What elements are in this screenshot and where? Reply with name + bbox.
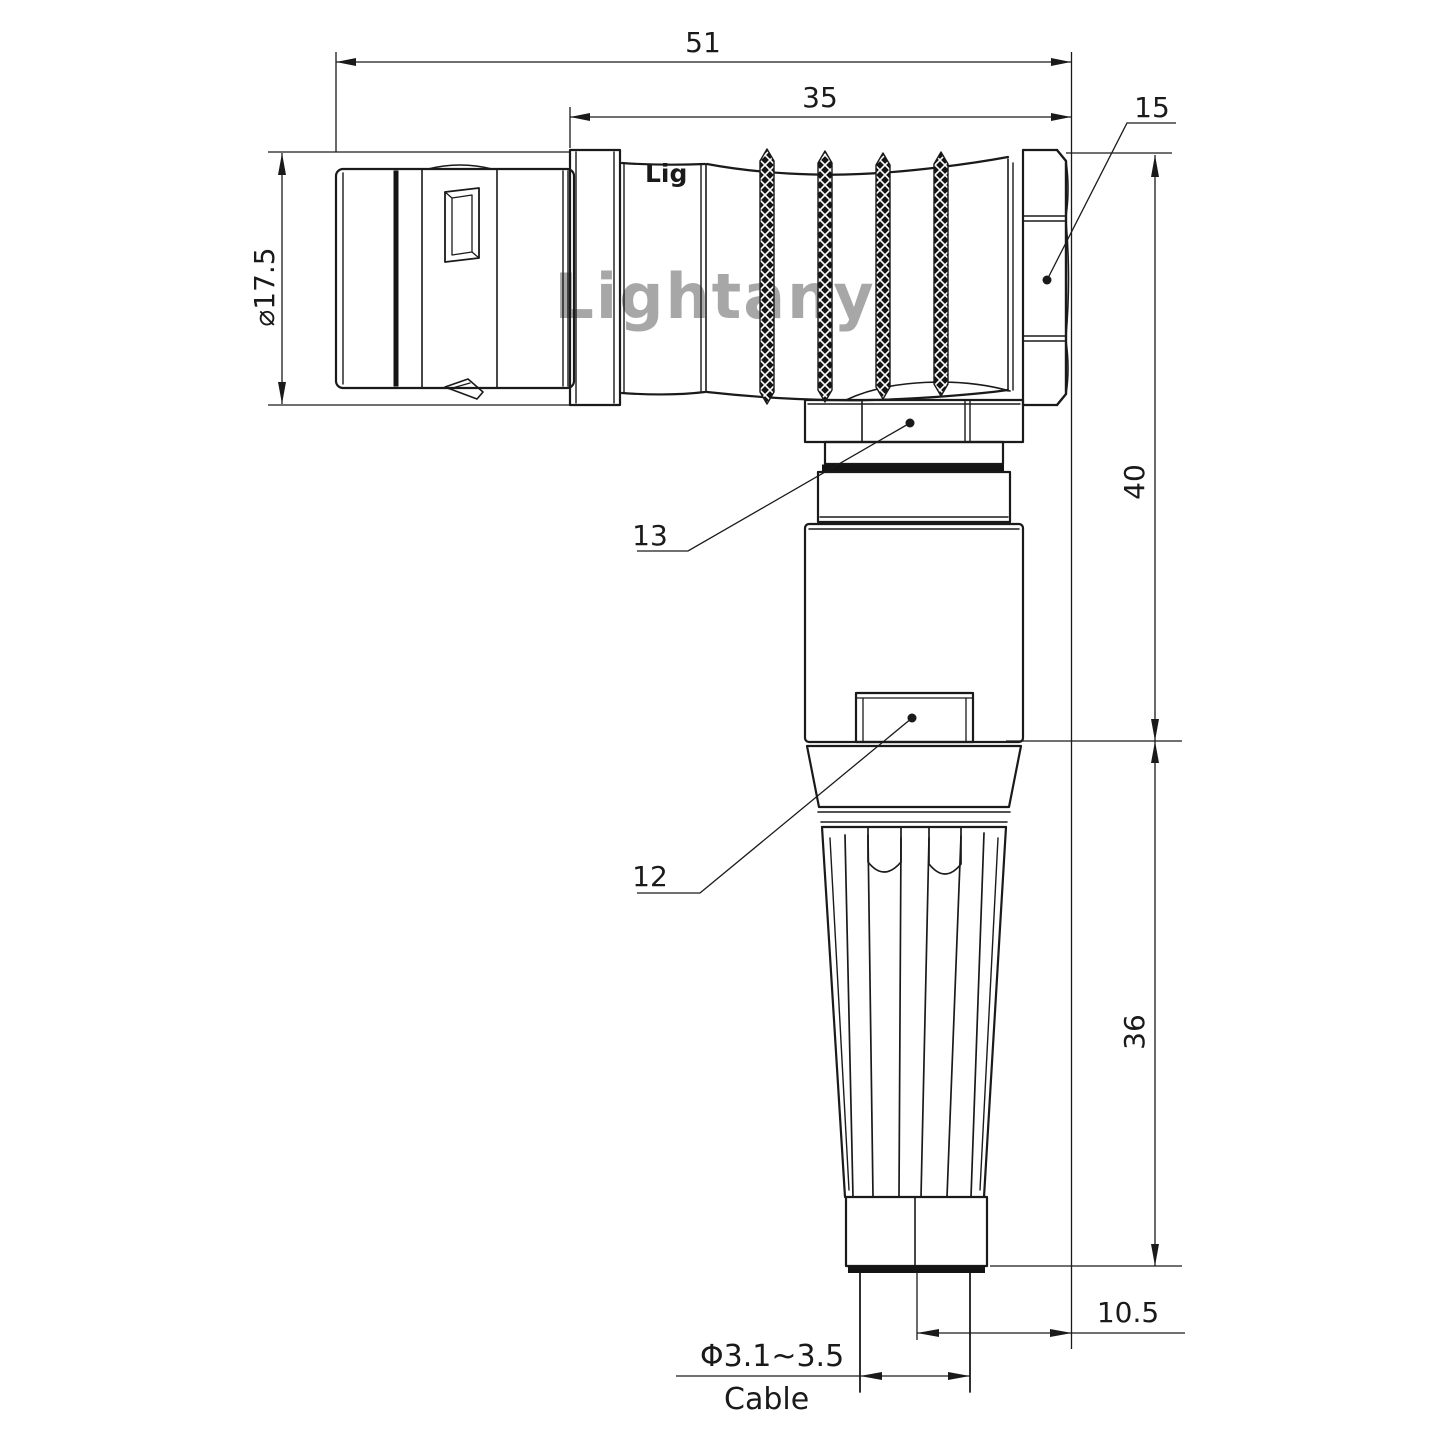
callout-latch-label: 12 xyxy=(632,860,668,893)
barrel xyxy=(805,524,1023,742)
elbow-lower-stack xyxy=(818,442,1010,522)
callout-coupling-nut-label: 15 xyxy=(1134,91,1170,124)
connector-technical-drawing: Lightany xyxy=(0,0,1440,1440)
dim-elbow-height-value: 40 xyxy=(1118,464,1151,500)
dim-axis-offset-value: 10.5 xyxy=(1097,1296,1159,1329)
connector-body-geometry xyxy=(336,149,1069,1392)
dim-plug-diameter-value: ⌀17.5 xyxy=(248,247,281,326)
dim-boot-height-value: 36 xyxy=(1118,1014,1151,1050)
body-logo-partial-text: Lig xyxy=(645,159,687,188)
callout-latch xyxy=(637,714,917,894)
ferrule xyxy=(846,1197,987,1273)
cable-label: Cable xyxy=(724,1382,809,1417)
latch-window xyxy=(445,188,479,262)
dimension-lines xyxy=(268,52,1185,1380)
rib-notch xyxy=(868,828,901,872)
callout-coupling-nut xyxy=(1043,123,1177,285)
o-ring xyxy=(822,465,1004,472)
dim-overall-length-value: 51 xyxy=(685,26,721,59)
dim-cable-diameter-value: Φ3.1~3.5 xyxy=(700,1339,844,1374)
dim-rear-length-value: 35 xyxy=(802,81,838,114)
callout-hex-ring xyxy=(637,419,915,552)
plug-body xyxy=(336,165,574,399)
dim-boot-height xyxy=(990,741,1182,1266)
taper-band xyxy=(807,746,1021,822)
callout-hex-ring-label: 13 xyxy=(632,519,668,552)
engineering-drawing-page: Lightany xyxy=(0,0,1440,1440)
rib-notch xyxy=(929,828,961,874)
dim-elbow-height xyxy=(1006,153,1182,741)
dim-overall-length xyxy=(336,52,1071,152)
strain-relief-cone xyxy=(822,827,1006,1197)
